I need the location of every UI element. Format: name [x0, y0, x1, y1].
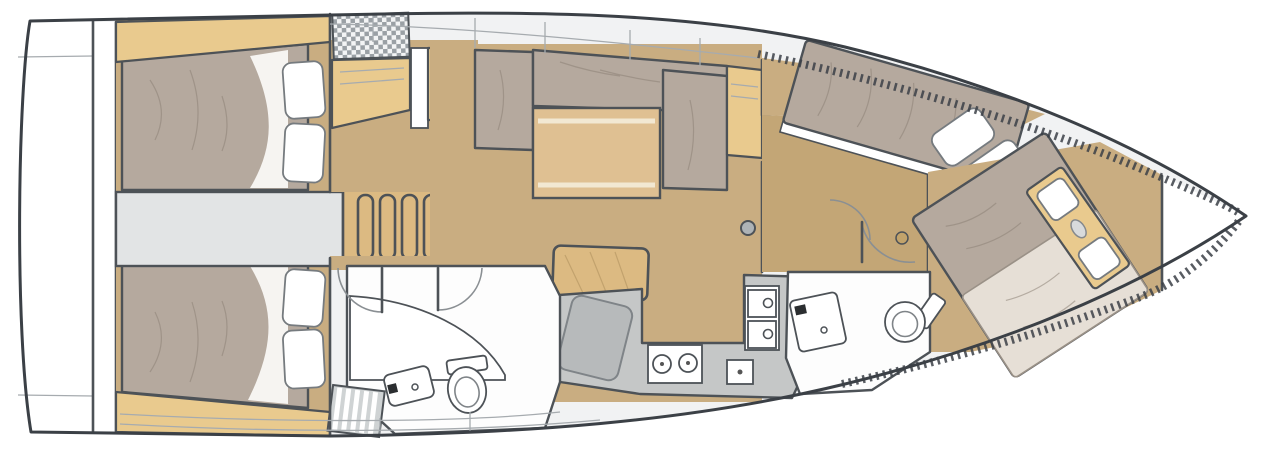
aft-cabin-port-pillow-2	[283, 123, 326, 183]
step-2	[380, 195, 395, 259]
mast-post	[741, 221, 755, 235]
head-fwd-vanity	[789, 292, 847, 353]
head-fwd	[786, 272, 946, 394]
step-3	[402, 195, 417, 259]
sideboard	[727, 66, 762, 158]
yacht-floor-plan	[0, 0, 1280, 457]
head-aft	[328, 258, 560, 437]
aft-cabin-starboard-pillow-2	[283, 329, 326, 389]
engine-compartment	[116, 192, 343, 266]
transom-fill	[20, 21, 116, 432]
burner-dot-2	[686, 361, 690, 365]
floor-plan-canvas	[0, 0, 1280, 457]
step-1	[358, 195, 373, 259]
fwd-cabin-starboard	[911, 132, 1162, 378]
slatted-locker	[328, 385, 385, 437]
settee-right	[663, 70, 727, 190]
aft-cabin-starboard-pillow-1	[282, 269, 326, 328]
wardrobe	[411, 48, 428, 128]
transom	[18, 20, 116, 432]
aft-cabin-starboard	[116, 262, 330, 436]
engine-box	[116, 192, 343, 266]
locker-knob	[738, 370, 743, 375]
burner-dot-1	[660, 362, 664, 366]
hatch-grate	[332, 13, 409, 60]
corridor-knob	[896, 232, 908, 244]
aft-cabin-port-pillow-1	[282, 61, 326, 120]
companionway	[343, 186, 445, 268]
